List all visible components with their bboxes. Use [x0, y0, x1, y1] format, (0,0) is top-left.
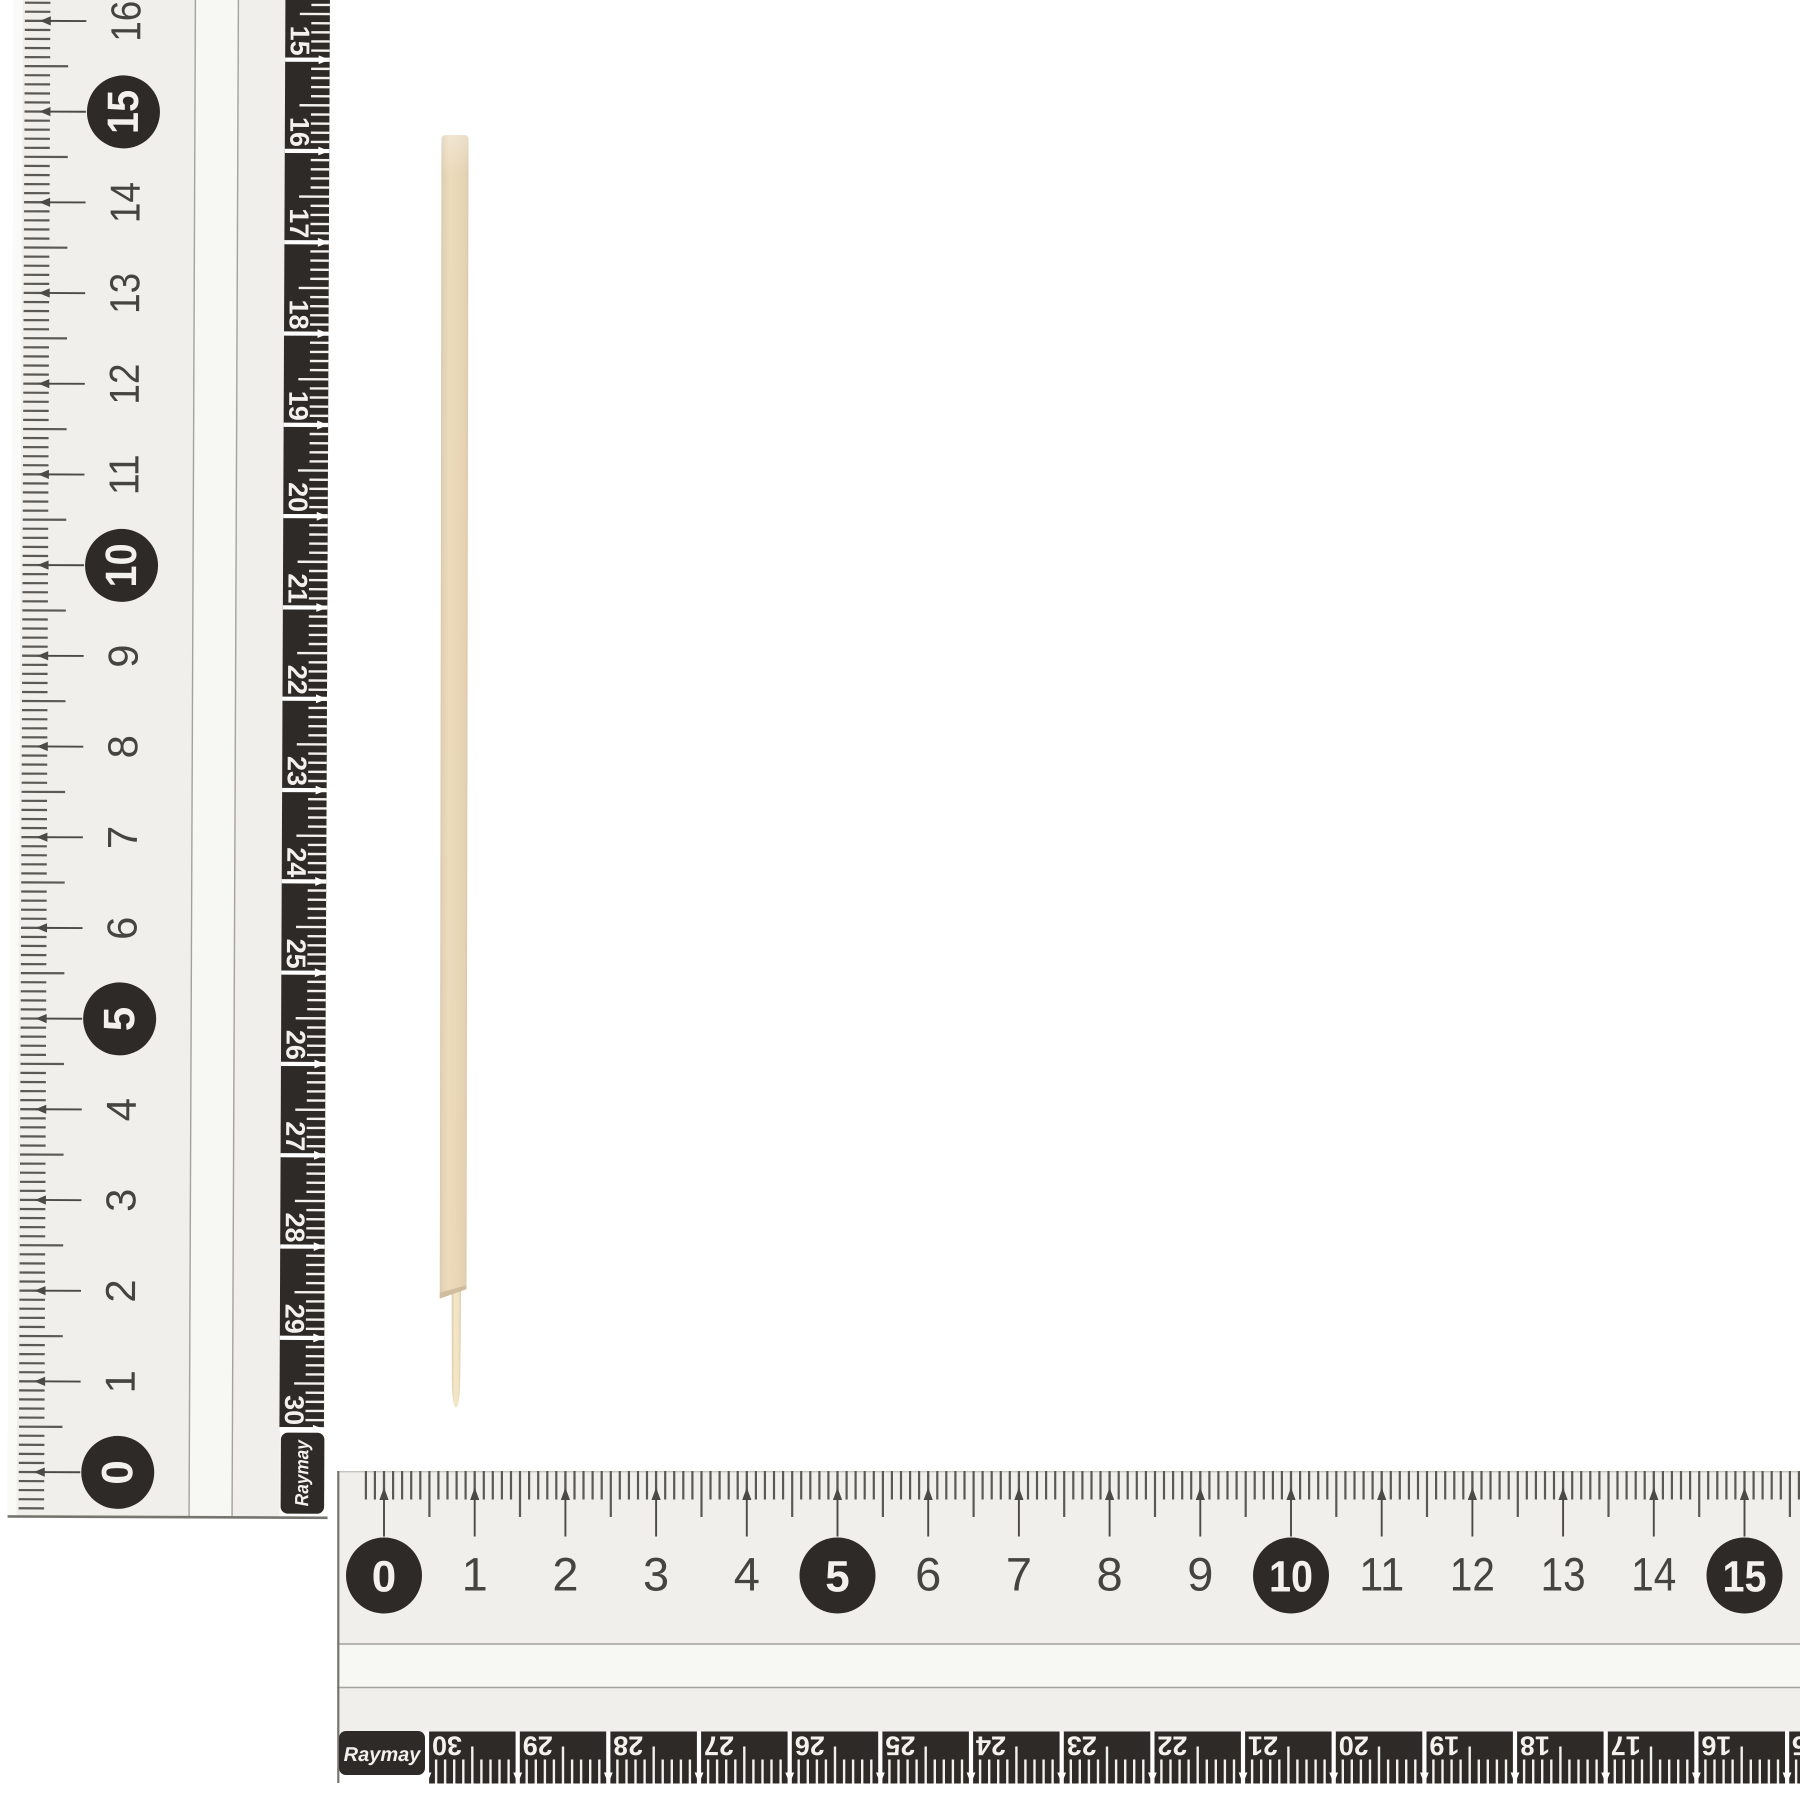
svg-text:9: 9: [100, 644, 147, 668]
svg-text:0: 0: [372, 1553, 396, 1602]
svg-text:21: 21: [282, 573, 312, 603]
svg-text:Raymay: Raymay: [292, 1439, 313, 1506]
svg-text:19: 19: [283, 391, 313, 421]
svg-text:22: 22: [282, 665, 312, 695]
svg-text:11: 11: [100, 454, 147, 495]
svg-text:29: 29: [523, 1731, 553, 1761]
svg-text:10: 10: [97, 543, 146, 587]
svg-text:13: 13: [1541, 1548, 1586, 1601]
svg-text:22: 22: [1157, 1731, 1187, 1761]
svg-text:20: 20: [1339, 1731, 1369, 1761]
svg-text:29: 29: [279, 1304, 309, 1334]
svg-text:6: 6: [98, 916, 145, 940]
svg-text:1: 1: [462, 1548, 488, 1601]
svg-text:5: 5: [825, 1553, 849, 1602]
svg-text:Raymay: Raymay: [344, 1744, 422, 1766]
svg-text:28: 28: [280, 1212, 310, 1242]
svg-text:8: 8: [99, 735, 146, 759]
svg-text:12: 12: [101, 363, 148, 404]
svg-text:7: 7: [99, 826, 146, 850]
svg-text:27: 27: [704, 1731, 734, 1761]
svg-text:6: 6: [915, 1548, 941, 1601]
svg-text:16: 16: [284, 117, 314, 147]
svg-text:2: 2: [552, 1548, 578, 1601]
svg-text:19: 19: [1429, 1731, 1459, 1761]
svg-text:5: 5: [95, 1007, 144, 1032]
svg-text:16: 16: [102, 1, 149, 42]
svg-text:25: 25: [885, 1731, 915, 1761]
svg-text:18: 18: [284, 299, 314, 329]
svg-text:20: 20: [283, 482, 313, 512]
svg-text:13: 13: [101, 273, 148, 314]
svg-text:25: 25: [281, 939, 311, 969]
svg-text:16: 16: [1701, 1731, 1731, 1761]
svg-text:30: 30: [432, 1731, 462, 1761]
svg-text:10: 10: [1269, 1553, 1313, 1602]
svg-text:26: 26: [280, 1030, 310, 1060]
svg-text:23: 23: [1067, 1731, 1097, 1761]
svg-text:23: 23: [282, 756, 312, 786]
svg-text:18: 18: [1520, 1731, 1550, 1761]
svg-text:4: 4: [98, 1098, 145, 1122]
svg-text:17: 17: [1611, 1731, 1641, 1761]
svg-text:12: 12: [1450, 1548, 1495, 1601]
svg-text:15: 15: [1723, 1553, 1767, 1602]
svg-text:24: 24: [976, 1731, 1006, 1761]
svg-text:2: 2: [97, 1279, 144, 1303]
svg-text:28: 28: [613, 1731, 643, 1761]
svg-text:3: 3: [97, 1189, 144, 1213]
svg-text:1: 1: [97, 1370, 144, 1394]
svg-text:0: 0: [93, 1460, 142, 1485]
svg-text:15: 15: [1792, 1731, 1800, 1761]
svg-text:14: 14: [1631, 1548, 1676, 1601]
svg-text:14: 14: [101, 182, 148, 223]
svg-text:24: 24: [281, 847, 311, 877]
svg-text:11: 11: [1359, 1548, 1404, 1601]
svg-text:30: 30: [279, 1395, 309, 1425]
svg-text:9: 9: [1187, 1548, 1213, 1601]
svg-text:15: 15: [99, 90, 148, 134]
svg-text:15: 15: [285, 26, 315, 56]
svg-text:26: 26: [795, 1731, 825, 1761]
svg-text:17: 17: [284, 208, 314, 238]
svg-text:27: 27: [280, 1121, 310, 1151]
svg-text:4: 4: [734, 1548, 760, 1601]
svg-text:8: 8: [1097, 1548, 1123, 1601]
svg-text:3: 3: [643, 1548, 669, 1601]
svg-text:7: 7: [1006, 1548, 1032, 1601]
svg-text:21: 21: [1248, 1731, 1278, 1761]
